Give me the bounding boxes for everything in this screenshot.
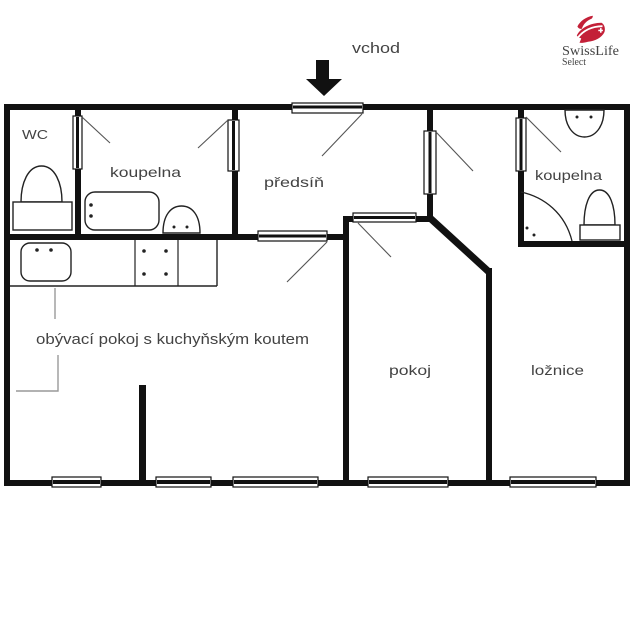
svg-text:vchod: vchod — [352, 40, 400, 57]
svg-text:obývací pokoj s kuchyňským kou: obývací pokoj s kuchyňským koutem — [36, 331, 309, 348]
svg-text:předsíň: předsíň — [264, 174, 324, 190]
svg-text:koupelna: koupelna — [535, 167, 602, 183]
svg-text:WC: WC — [22, 127, 48, 142]
svg-text:koupelna: koupelna — [110, 164, 181, 180]
svg-text:Select: Select — [562, 57, 586, 68]
svg-text:ložnice: ložnice — [531, 362, 584, 378]
svg-text:pokoj: pokoj — [389, 362, 431, 378]
